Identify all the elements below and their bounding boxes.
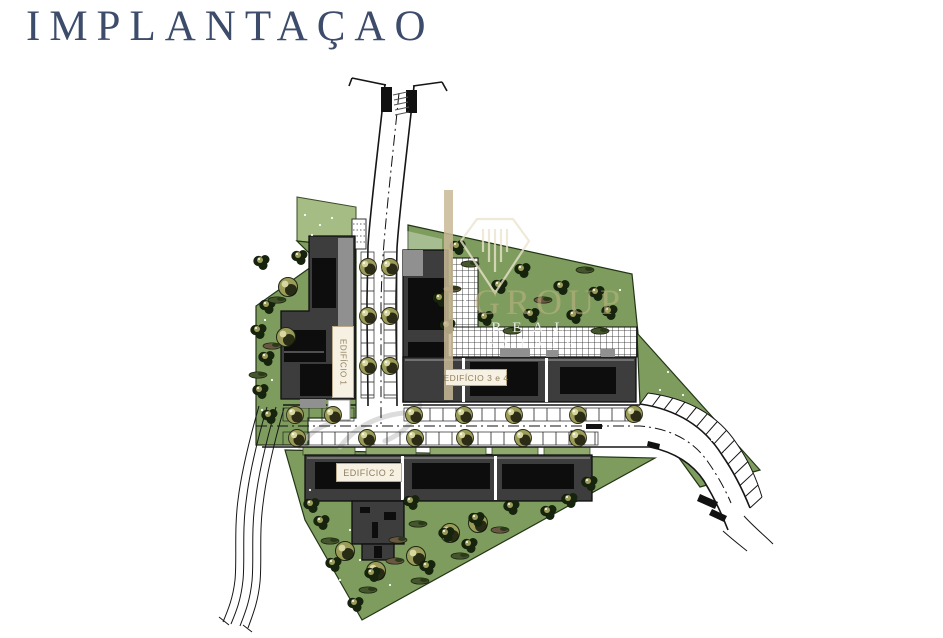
green-strip: [366, 447, 416, 455]
green-strip: [303, 447, 355, 455]
road-end-tick: [219, 617, 229, 625]
drain: [586, 424, 602, 429]
building-gap: [545, 358, 548, 402]
site-plan-drawing: [0, 0, 943, 638]
site-plan-page: IMPLANTAÇAO: [0, 0, 943, 638]
green-strip: [430, 447, 486, 455]
road-end-tick: [243, 625, 252, 632]
gate-post: [381, 87, 392, 112]
building-3-4-label: EDIFÍCIO 3 e 4: [445, 369, 507, 386]
building-1-label: EDIFÍCIO 1: [332, 326, 354, 398]
road-tail: [723, 531, 747, 551]
gate-post: [406, 90, 417, 113]
entrance-wing-wall: [413, 82, 447, 91]
green-strip: [492, 447, 538, 455]
building-2-label: EDIFÍCIO 2: [336, 463, 402, 482]
road-tail: [744, 516, 773, 544]
green-strip: [544, 447, 590, 455]
entrance-wing-wall: [349, 78, 386, 86]
building-gap: [494, 456, 497, 500]
